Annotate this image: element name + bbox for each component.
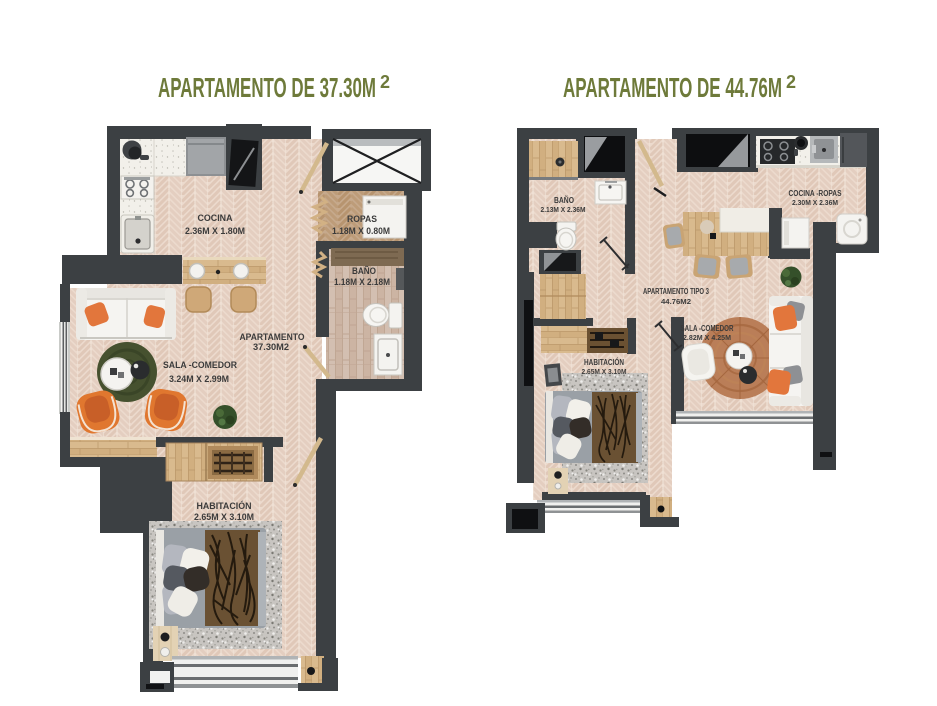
svg-text:APARTAMENTO TIPO 3: APARTAMENTO TIPO 3 xyxy=(643,287,709,296)
svg-text:2: 2 xyxy=(786,72,796,92)
svg-text:SALA -COMEDOR: SALA -COMEDOR xyxy=(163,360,237,371)
svg-text:HABITACIÓN: HABITACIÓN xyxy=(197,500,252,512)
svg-text:2.36M X 1.80M: 2.36M X 1.80M xyxy=(185,226,245,236)
svg-text:APARTAMENTO DE 44.76M: APARTAMENTO DE 44.76M xyxy=(563,72,782,103)
svg-text:2.13M X 2.36M: 2.13M X 2.36M xyxy=(541,205,586,214)
svg-text:BAÑO: BAÑO xyxy=(554,196,574,205)
svg-text:COCINA -ROPAS: COCINA -ROPAS xyxy=(789,189,843,198)
svg-text:1.18M X 0.80M: 1.18M X 0.80M xyxy=(332,226,390,236)
svg-text:2.65M X 3.10M: 2.65M X 3.10M xyxy=(194,512,254,522)
svg-text:COCINA: COCINA xyxy=(198,213,233,224)
svg-text:2: 2 xyxy=(380,72,390,92)
svg-text:APARTAMENTO DE 37.30M: APARTAMENTO DE 37.30M xyxy=(158,72,376,103)
svg-text:3.24M X 2.99M: 3.24M X 2.99M xyxy=(169,374,229,384)
svg-text:2.65M X 3.10M: 2.65M X 3.10M xyxy=(582,367,627,376)
svg-text:44.76M2: 44.76M2 xyxy=(661,297,691,306)
svg-text:2.82M X 4.25M: 2.82M X 4.25M xyxy=(683,333,731,342)
svg-text:37.30M2: 37.30M2 xyxy=(253,342,289,352)
svg-text:2.30M X 2.36M: 2.30M X 2.36M xyxy=(792,198,838,207)
svg-text:ROPAS: ROPAS xyxy=(347,214,377,225)
svg-text:BAÑO: BAÑO xyxy=(352,266,376,277)
svg-text:HABITACIÓN: HABITACIÓN xyxy=(584,358,624,367)
svg-text:1.18M X 2.18M: 1.18M X 2.18M xyxy=(334,277,390,287)
svg-text:SALA -COMEDOR: SALA -COMEDOR xyxy=(681,324,734,333)
